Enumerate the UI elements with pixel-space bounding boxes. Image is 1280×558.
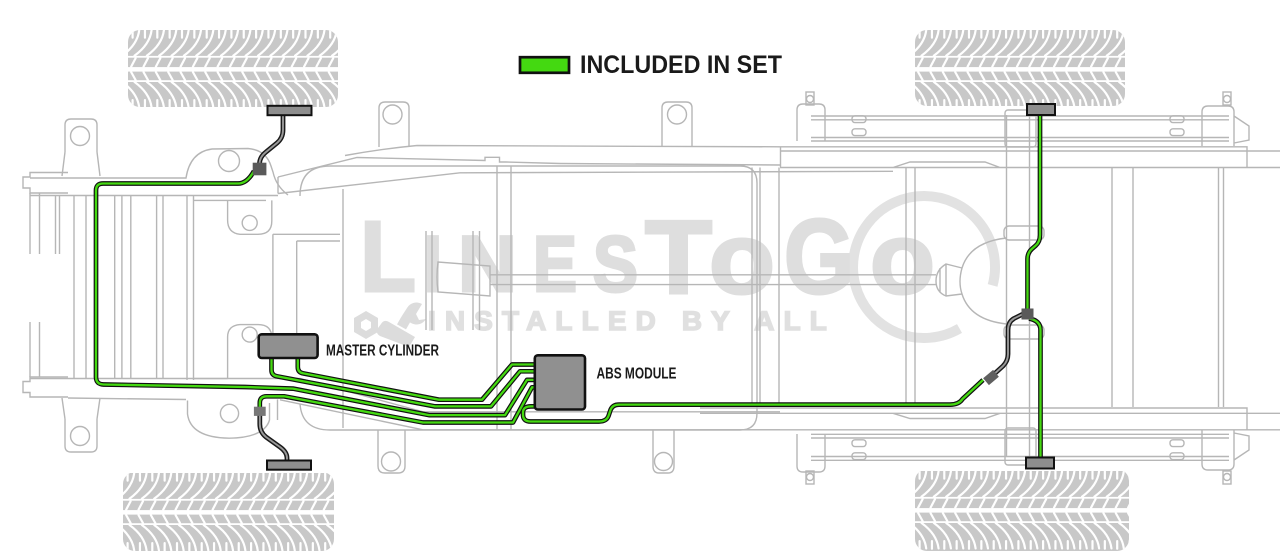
svg-text:o: o <box>870 203 935 315</box>
svg-text:G: G <box>784 198 854 316</box>
svg-text:MASTER CYLINDER: MASTER CYLINDER <box>326 343 439 360</box>
svg-text:L: L <box>360 201 416 313</box>
svg-text:o: o <box>709 203 775 315</box>
svg-text:ABS MODULE: ABS MODULE <box>597 366 677 383</box>
svg-text:E: E <box>533 219 577 308</box>
svg-text:S: S <box>593 219 638 308</box>
svg-text:INSTALLED BY ALL: INSTALLED BY ALL <box>428 306 836 336</box>
svg-text:INCLUDED IN SET: INCLUDED IN SET <box>580 51 782 79</box>
svg-text:T: T <box>645 200 712 316</box>
